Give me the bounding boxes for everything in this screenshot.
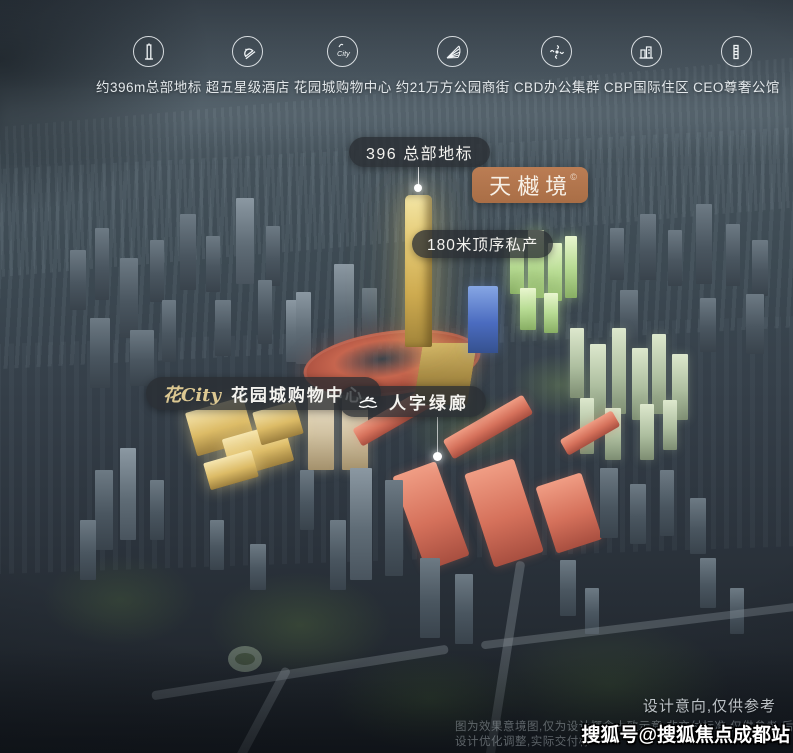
- building-block: [392, 461, 469, 571]
- feature-item-park-street: 约21万方公园商街: [396, 36, 510, 96]
- blue-glass-tower: [468, 286, 498, 353]
- feature-bar: 约396m总部地标 超五星级酒店 City 花园城购物中心: [96, 36, 771, 96]
- svg-text:City: City: [337, 49, 351, 58]
- feature-item-cbp: CBP国际住区: [604, 36, 689, 96]
- feature-label: 花园城购物中心: [294, 76, 392, 96]
- building-block: [296, 292, 311, 364]
- landmark-gold-tower: [405, 195, 432, 347]
- design-intent-note: 设计意向,仅供参考: [643, 695, 776, 716]
- building-block: [420, 558, 440, 638]
- building-block: [630, 484, 646, 544]
- building-block: [612, 328, 626, 414]
- building-block: [162, 300, 176, 362]
- premium-product-label: 180米顶序私产: [427, 233, 538, 255]
- feature-label: CBD办公集群: [514, 76, 600, 96]
- building-block: [236, 198, 254, 284]
- building-block: [206, 236, 220, 292]
- green-corridor-tag: 人字绿廊: [339, 386, 486, 417]
- mall-logo: 花City: [163, 381, 221, 407]
- ceo-mansion-icon: [721, 36, 752, 67]
- park-street-icon: [437, 36, 468, 67]
- road: [481, 603, 793, 650]
- feature-item-ceo: CEO尊奢公馆: [693, 36, 780, 96]
- building-block: [570, 328, 584, 398]
- building-block: [95, 470, 113, 550]
- building-block: [455, 574, 473, 644]
- building-block: [690, 498, 706, 554]
- building-block: [464, 458, 544, 567]
- feature-label: 约396m总部地标: [96, 76, 202, 96]
- hq-tower-icon: [133, 36, 164, 67]
- building-block: [726, 224, 740, 286]
- building-block: [520, 288, 536, 330]
- feature-item-hq: 约396m总部地标: [96, 36, 202, 96]
- sohu-watermark: 搜狐号@搜狐焦点成都站: [581, 720, 790, 747]
- building-block: [215, 300, 231, 356]
- building-block: [210, 520, 224, 570]
- building-block: [150, 240, 164, 302]
- building-block: [70, 250, 86, 310]
- building-block: [535, 472, 602, 553]
- building-block: [300, 470, 314, 530]
- brand-trademark: ©: [570, 172, 577, 182]
- building-block: [746, 294, 764, 354]
- building-block: [660, 470, 674, 536]
- building-block: [330, 520, 346, 590]
- feature-item-mall: City 花园城购物中心: [294, 36, 392, 96]
- building-block: [610, 228, 624, 280]
- green-corridor-icon: [356, 394, 380, 410]
- building-block: [700, 298, 716, 352]
- building-block: [180, 214, 196, 290]
- leader-line: [418, 167, 419, 185]
- building-block: [150, 480, 164, 540]
- leader-dot: [414, 184, 422, 192]
- green-corridor-label: 人字绿廊: [389, 389, 469, 414]
- hq-landmark-tag: 396 总部地标: [349, 137, 490, 167]
- building-block: [668, 230, 682, 286]
- feature-label: 约21万方公园商街: [396, 76, 510, 96]
- building-block: [203, 450, 259, 491]
- building-block: [752, 240, 768, 296]
- roundabout: [228, 646, 262, 672]
- road: [151, 645, 449, 701]
- building-block: [600, 468, 618, 538]
- premium-product-tag: 180米顶序私产: [412, 230, 553, 258]
- building-block: [130, 330, 154, 386]
- building-block: [696, 204, 712, 284]
- building-block: [250, 544, 266, 590]
- building-block: [560, 560, 576, 616]
- leader-dot: [433, 452, 442, 461]
- building-block: [640, 404, 654, 460]
- building-block: [120, 258, 138, 338]
- building-block: [90, 318, 110, 388]
- building-block: [640, 214, 656, 280]
- building-block: [120, 448, 136, 540]
- feature-item-cbd: CBD办公集群: [514, 36, 600, 96]
- building-block: [350, 468, 372, 580]
- cbd-office-icon: [541, 36, 572, 67]
- building-block: [80, 520, 96, 580]
- building-block: [700, 558, 716, 608]
- mall-logo-text: 花City: [163, 385, 221, 406]
- brand-badge: 天樾境 ©: [472, 167, 588, 203]
- disclaimer-line-2: 设计优化调整,实际交付标: [455, 733, 591, 749]
- building-block: [266, 226, 280, 286]
- building-block: [385, 480, 403, 576]
- feature-label: CEO尊奢公馆: [693, 76, 780, 96]
- building-block: [565, 236, 577, 298]
- hotel-bell-icon: [232, 36, 263, 67]
- building-block: [544, 293, 558, 333]
- building-block: [258, 280, 272, 344]
- mall-city-icon: City: [327, 36, 358, 67]
- feature-label: 超五星级酒店: [206, 76, 290, 96]
- aerial-render-page: 约396m总部地标 超五星级酒店 City 花园城购物中心: [0, 0, 793, 753]
- leader-line: [437, 417, 438, 453]
- brand-name: 天樾境: [489, 169, 573, 201]
- building-block: [663, 400, 677, 450]
- feature-label: CBP国际住区: [604, 76, 689, 96]
- hq-landmark-label: 396 总部地标: [366, 140, 473, 164]
- cbp-housing-icon: [631, 36, 662, 67]
- feature-item-hotel: 超五星级酒店: [206, 36, 290, 96]
- building-block: [95, 228, 109, 300]
